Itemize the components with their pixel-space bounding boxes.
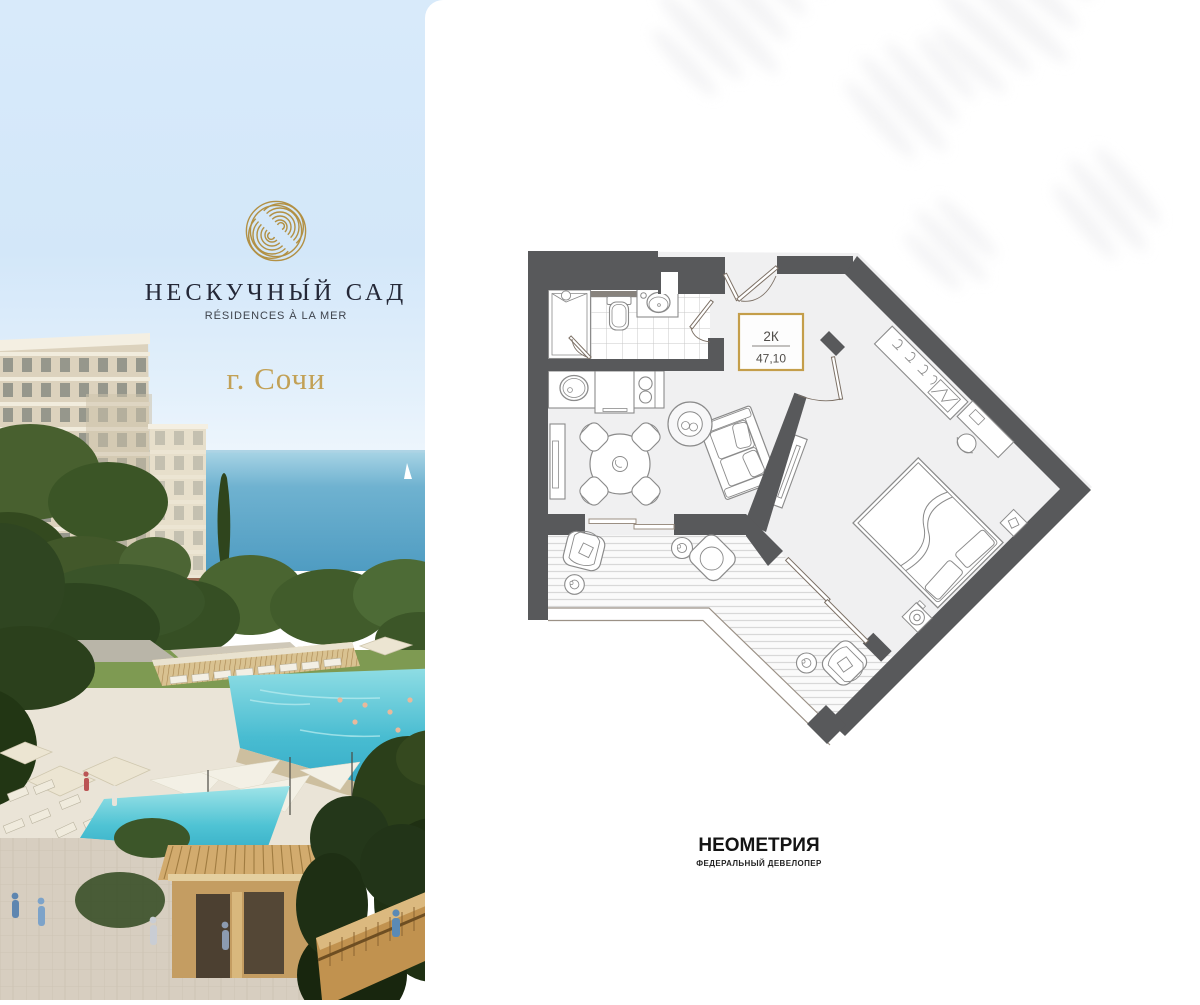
svg-text:47,10: 47,10 (756, 352, 786, 366)
svg-text:2К: 2К (763, 329, 779, 344)
